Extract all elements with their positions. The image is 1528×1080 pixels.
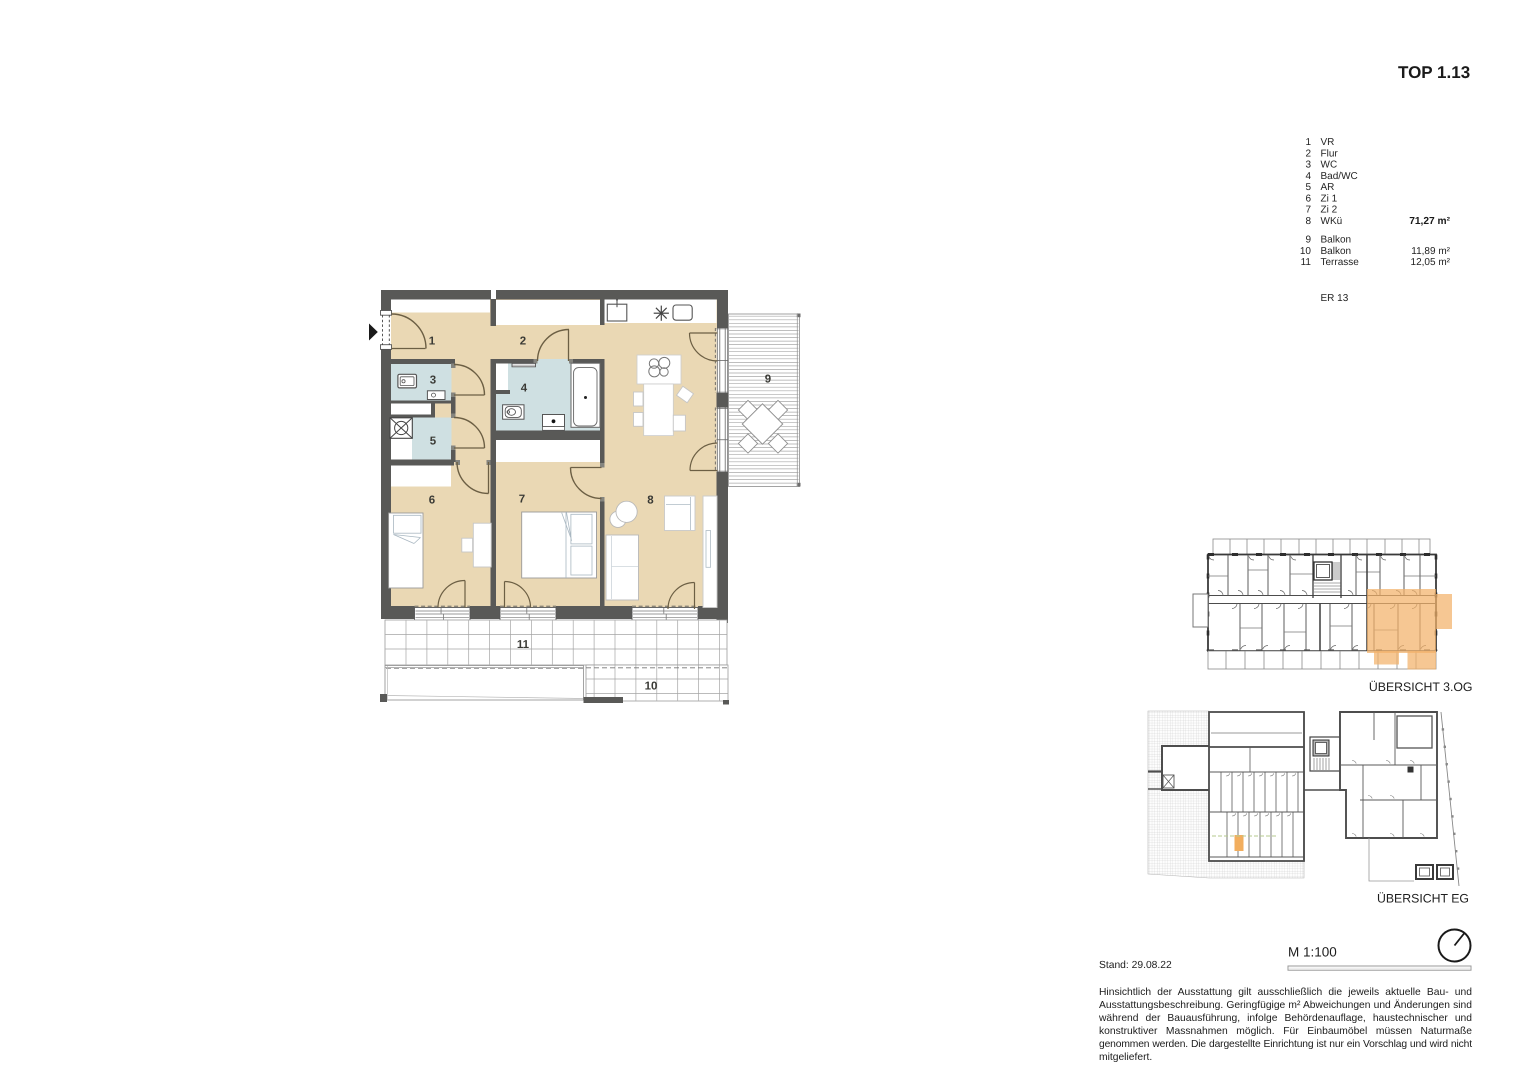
svg-text:6: 6	[429, 495, 435, 507]
svg-text:5: 5	[430, 436, 437, 448]
svg-text:10: 10	[645, 681, 658, 693]
svg-text:1: 1	[1305, 137, 1311, 148]
svg-text:TOP 1.13: TOP 1.13	[1398, 63, 1470, 82]
svg-text:2: 2	[1305, 148, 1311, 159]
svg-text:9: 9	[1305, 235, 1311, 246]
svg-text:M 1:100: M 1:100	[1288, 945, 1337, 960]
svg-text:7: 7	[519, 494, 525, 506]
svg-text:10: 10	[1300, 246, 1312, 257]
svg-text:4: 4	[521, 383, 528, 395]
svg-text:ÜBERSICHT EG: ÜBERSICHT EG	[1377, 892, 1469, 906]
svg-text:Zi 2: Zi 2	[1321, 205, 1338, 216]
svg-text:3: 3	[1305, 160, 1311, 171]
svg-text:71,27 m²: 71,27 m²	[1409, 216, 1450, 227]
svg-text:3: 3	[430, 375, 436, 387]
svg-text:6: 6	[1305, 193, 1311, 204]
svg-text:7: 7	[1305, 205, 1311, 216]
svg-text:5: 5	[1305, 182, 1311, 193]
svg-text:2: 2	[520, 336, 526, 348]
svg-text:Stand: 29.08.22: Stand: 29.08.22	[1099, 960, 1172, 971]
svg-text:Zi 1: Zi 1	[1321, 193, 1338, 204]
svg-text:4: 4	[1305, 171, 1311, 182]
svg-text:VR: VR	[1321, 137, 1335, 148]
svg-text:WKü: WKü	[1321, 216, 1343, 227]
svg-text:11: 11	[517, 639, 530, 651]
svg-text:Balkon: Balkon	[1321, 235, 1352, 246]
svg-text:9: 9	[765, 374, 771, 386]
svg-text:8: 8	[1305, 216, 1311, 227]
svg-text:Terrasse: Terrasse	[1321, 257, 1360, 268]
svg-text:11,89 m²: 11,89 m²	[1411, 246, 1450, 257]
svg-text:WC: WC	[1321, 160, 1338, 171]
svg-text:11: 11	[1301, 257, 1312, 268]
svg-text:1: 1	[429, 336, 436, 348]
svg-text:ÜBERSICHT 3.OG: ÜBERSICHT 3.OG	[1369, 680, 1473, 694]
svg-text:AR: AR	[1321, 182, 1335, 193]
svg-text:12,05 m²: 12,05 m²	[1411, 257, 1451, 268]
svg-text:Flur: Flur	[1321, 148, 1339, 159]
svg-text:8: 8	[647, 495, 654, 507]
svg-text:Balkon: Balkon	[1321, 246, 1352, 257]
svg-text:ER 13: ER 13	[1321, 293, 1349, 304]
svg-text:Bad/WC: Bad/WC	[1321, 171, 1358, 182]
